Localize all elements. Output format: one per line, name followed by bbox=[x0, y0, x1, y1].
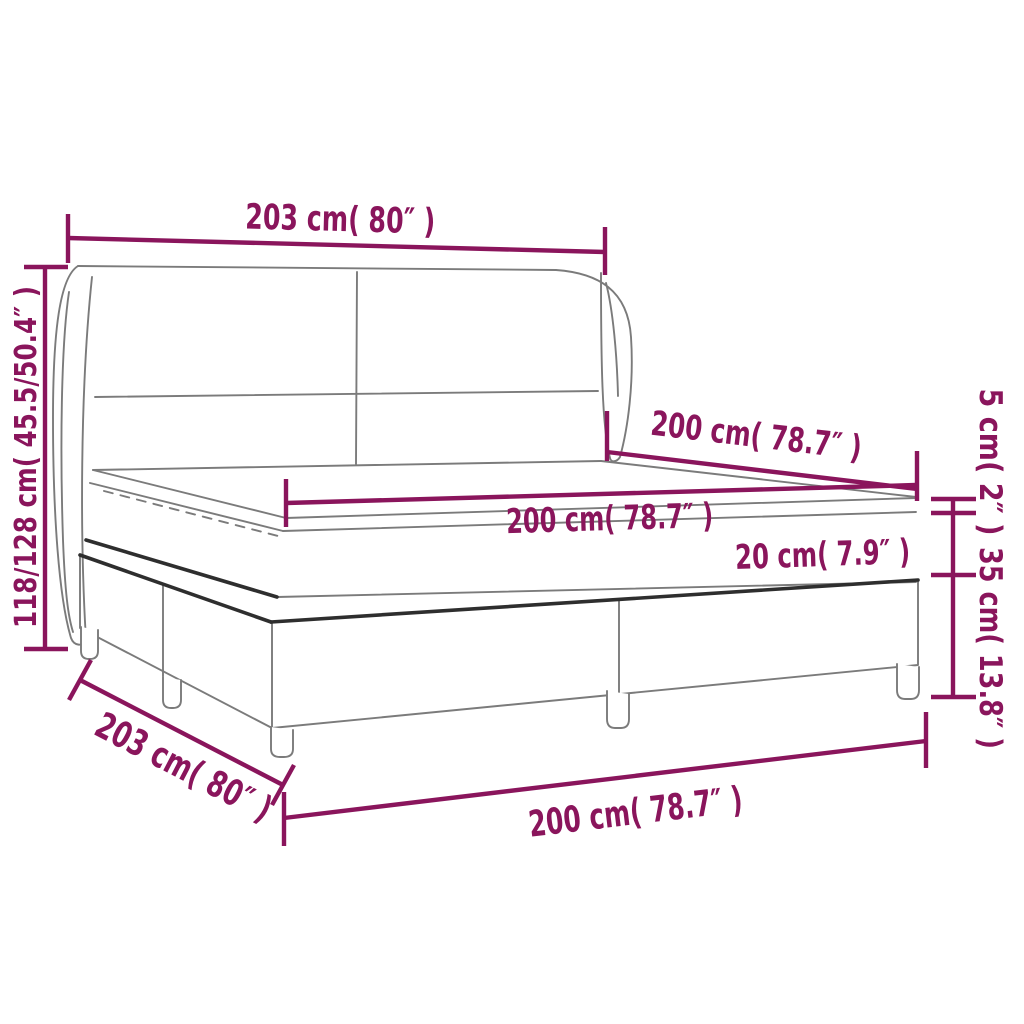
dim-label-topper-thickness: 5 cm( 2″ ) bbox=[972, 389, 1008, 536]
headboard-horizontal-seam bbox=[95, 391, 598, 397]
bed-diagram-canvas: 203 cm( 80″ ) 118/128 cm( 45.5/50.4″ ) 2… bbox=[0, 0, 1024, 1024]
bed-leg-mid-left bbox=[163, 677, 181, 708]
headboard-top-edge bbox=[78, 266, 556, 270]
dim-label-mattress-length-mid: 200 cm( 78.7″ ) bbox=[506, 496, 714, 542]
headboard-left-wing bbox=[53, 266, 92, 645]
dim-label-base-height: 35 cm( 13.8″ ) bbox=[972, 547, 1008, 749]
box-front-face bbox=[272, 581, 918, 728]
dim-label-bed-length-bottom: 200 cm( 78.7″ ) bbox=[526, 779, 744, 845]
bed-leg-back-left bbox=[81, 627, 98, 659]
mattress-bottom-seam bbox=[277, 582, 916, 597]
bed-leg-front-mid bbox=[607, 691, 629, 728]
bed-line-art bbox=[53, 266, 919, 757]
bed-leg-front-right bbox=[897, 664, 919, 699]
headboard-right-wing bbox=[556, 270, 632, 461]
bed-leg-front-corner bbox=[271, 727, 293, 757]
dim-label-frame-width-top: 203 cm( 80″ ) bbox=[245, 198, 436, 243]
mattress-back-edge bbox=[93, 461, 601, 470]
dim-label-headboard-height: 118/128 cm( 45.5/50.4″ ) bbox=[9, 286, 44, 628]
headboard-left-wing-crease bbox=[61, 292, 73, 632]
dim-line-mattress-width bbox=[607, 452, 917, 489]
mattress-left-edge bbox=[93, 470, 286, 518]
headboard-vertical-seam bbox=[356, 272, 357, 464]
dim-tick bbox=[69, 660, 91, 700]
topper-zipper-dashes bbox=[104, 491, 278, 536]
topper-seam-left bbox=[90, 483, 283, 531]
bed-dimension-diagram: 203 cm( 80″ ) 118/128 cm( 45.5/50.4″ ) 2… bbox=[0, 0, 1024, 1024]
box-top-piping-front bbox=[271, 580, 918, 622]
headboard-right-wing-crease bbox=[606, 283, 618, 396]
dim-label-mattress-thickness: 20 cm( 7.9″ ) bbox=[734, 532, 910, 578]
dim-line-frame-width bbox=[68, 238, 605, 252]
